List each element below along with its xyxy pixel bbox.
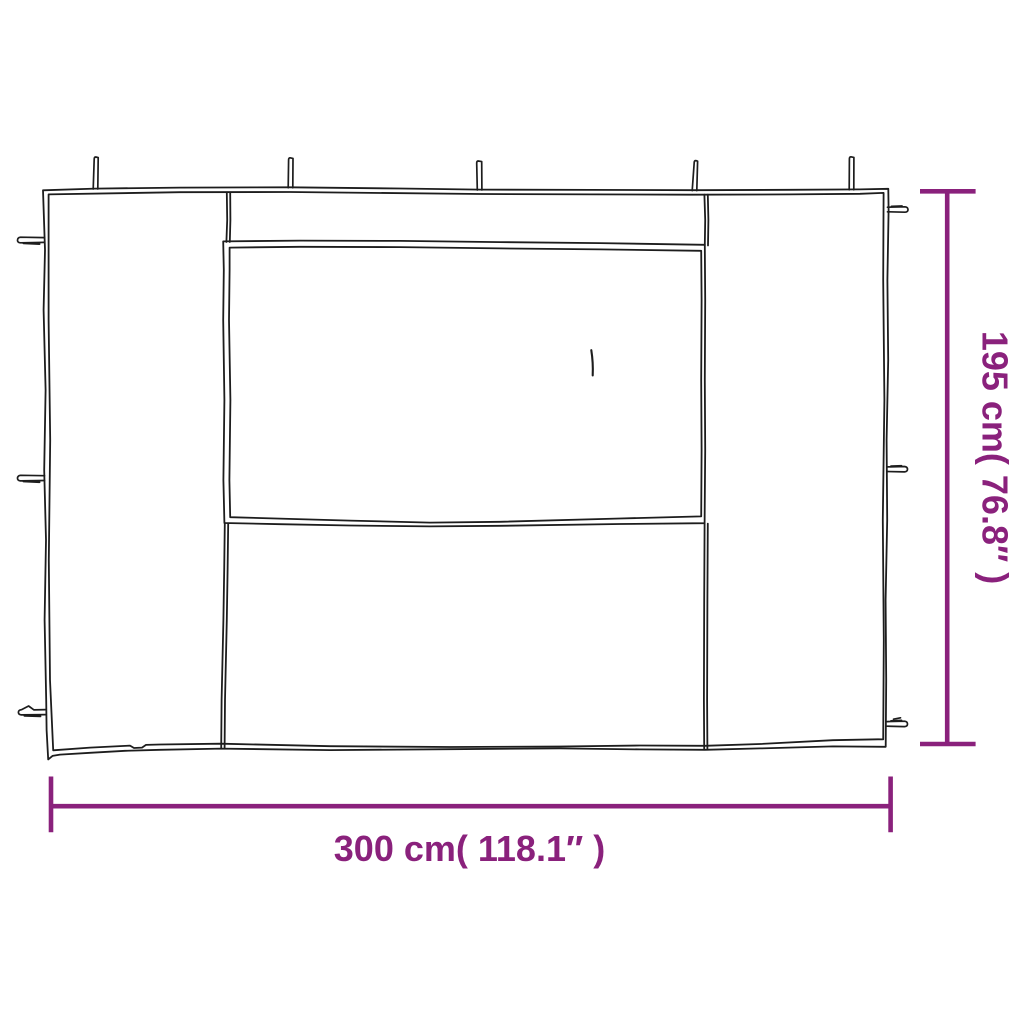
svg-text:195 cm( 76.8″ ): 195 cm( 76.8″ ) [974, 331, 1015, 584]
svg-text:300 cm( 118.1″ ): 300 cm( 118.1″ ) [334, 828, 605, 869]
